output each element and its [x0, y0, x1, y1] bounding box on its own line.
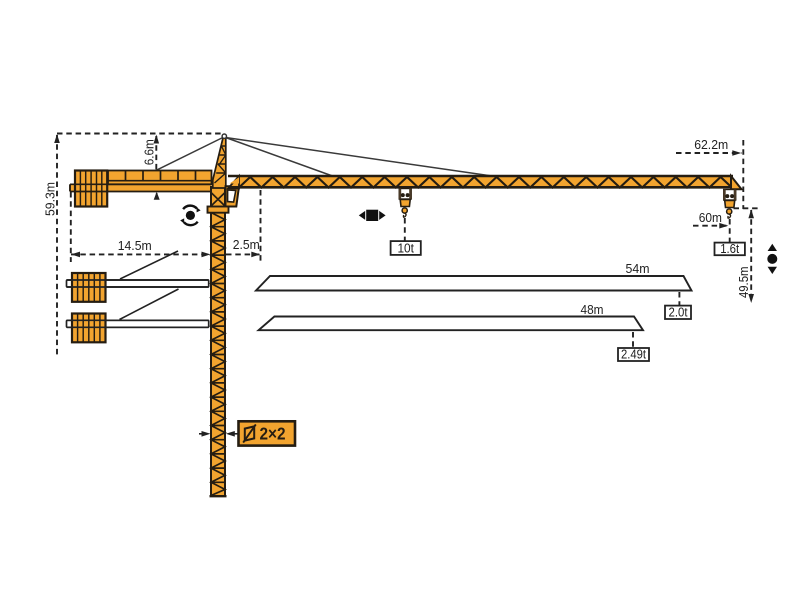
svg-text:6.6m: 6.6m [141, 139, 156, 165]
svg-text:54m: 54m [626, 261, 650, 276]
svg-text:14.5m: 14.5m [118, 238, 152, 253]
svg-text:2.0t: 2.0t [669, 305, 688, 320]
svg-text:2.49t: 2.49t [621, 347, 646, 362]
svg-text:2×2: 2×2 [260, 424, 286, 444]
svg-text:59.3m: 59.3m [43, 182, 58, 216]
svg-text:60m: 60m [699, 210, 722, 225]
svg-text:49.5m: 49.5m [736, 267, 751, 299]
svg-text:62.2m: 62.2m [694, 137, 728, 152]
svg-text:10t: 10t [397, 241, 414, 256]
svg-text:1.6t: 1.6t [720, 241, 739, 256]
svg-text:2.5m: 2.5m [233, 237, 260, 252]
svg-text:48m: 48m [581, 302, 604, 317]
